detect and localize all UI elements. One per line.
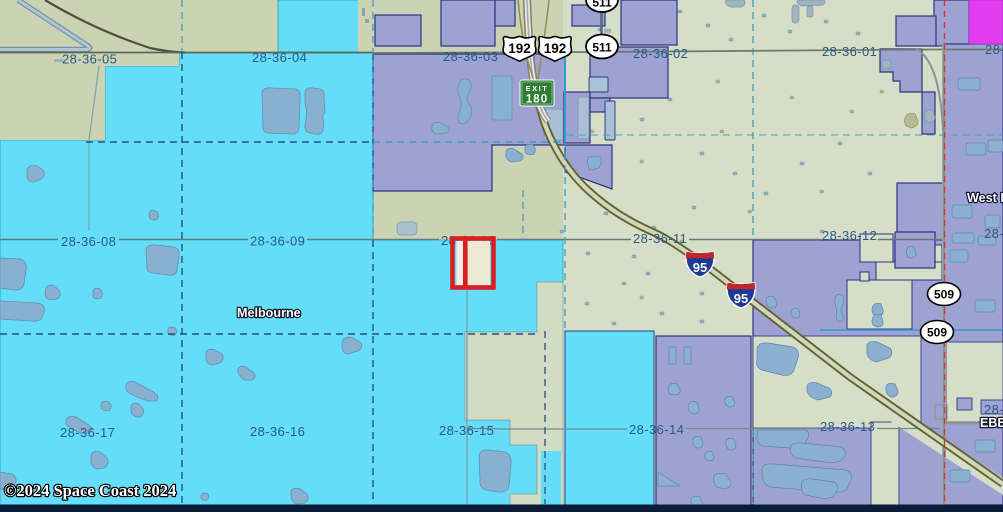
svg-text:West Me: West Me — [967, 191, 1003, 205]
svg-text:28-: 28- — [984, 226, 1003, 241]
svg-text:95: 95 — [734, 291, 748, 306]
svg-text:180: 180 — [526, 94, 548, 106]
svg-text:28-36-08: 28-36-08 — [61, 234, 116, 249]
svg-text:28-36-14: 28-36-14 — [629, 422, 684, 437]
svg-text:Melbourne: Melbourne — [237, 306, 301, 320]
svg-text:28-36-03: 28-36-03 — [443, 49, 498, 64]
svg-text:509: 509 — [934, 288, 954, 302]
svg-text:511: 511 — [592, 41, 612, 55]
svg-text:28-3: 28-3 — [985, 42, 1003, 57]
svg-text:511: 511 — [592, 0, 612, 10]
svg-text:28-36-01: 28-36-01 — [822, 44, 877, 59]
svg-text:28-36-17: 28-36-17 — [60, 425, 115, 440]
svg-text:95: 95 — [693, 260, 707, 275]
svg-text:28-36-04: 28-36-04 — [252, 50, 307, 65]
svg-text:28-36-15: 28-36-15 — [439, 423, 494, 438]
svg-text:28-36-16: 28-36-16 — [250, 424, 305, 439]
svg-text:28-36-09: 28-36-09 — [250, 234, 305, 249]
svg-text:28-: 28- — [984, 402, 1003, 417]
svg-text:EBER: EBER — [980, 416, 1003, 430]
svg-text:192: 192 — [544, 41, 567, 56]
svg-text:192: 192 — [508, 41, 531, 56]
svg-text:28-36-05: 28-36-05 — [62, 52, 117, 67]
svg-text:28-36-02: 28-36-02 — [633, 46, 688, 61]
svg-text:EXIT: EXIT — [526, 84, 549, 93]
svg-text:©2024 Space Coast 2024: ©2024 Space Coast 2024 — [4, 481, 176, 500]
svg-text:28-36-11: 28-36-11 — [633, 231, 687, 246]
svg-text:28-36-13: 28-36-13 — [820, 419, 875, 434]
svg-text:28-36-12: 28-36-12 — [822, 228, 877, 243]
svg-text:509: 509 — [927, 326, 947, 340]
